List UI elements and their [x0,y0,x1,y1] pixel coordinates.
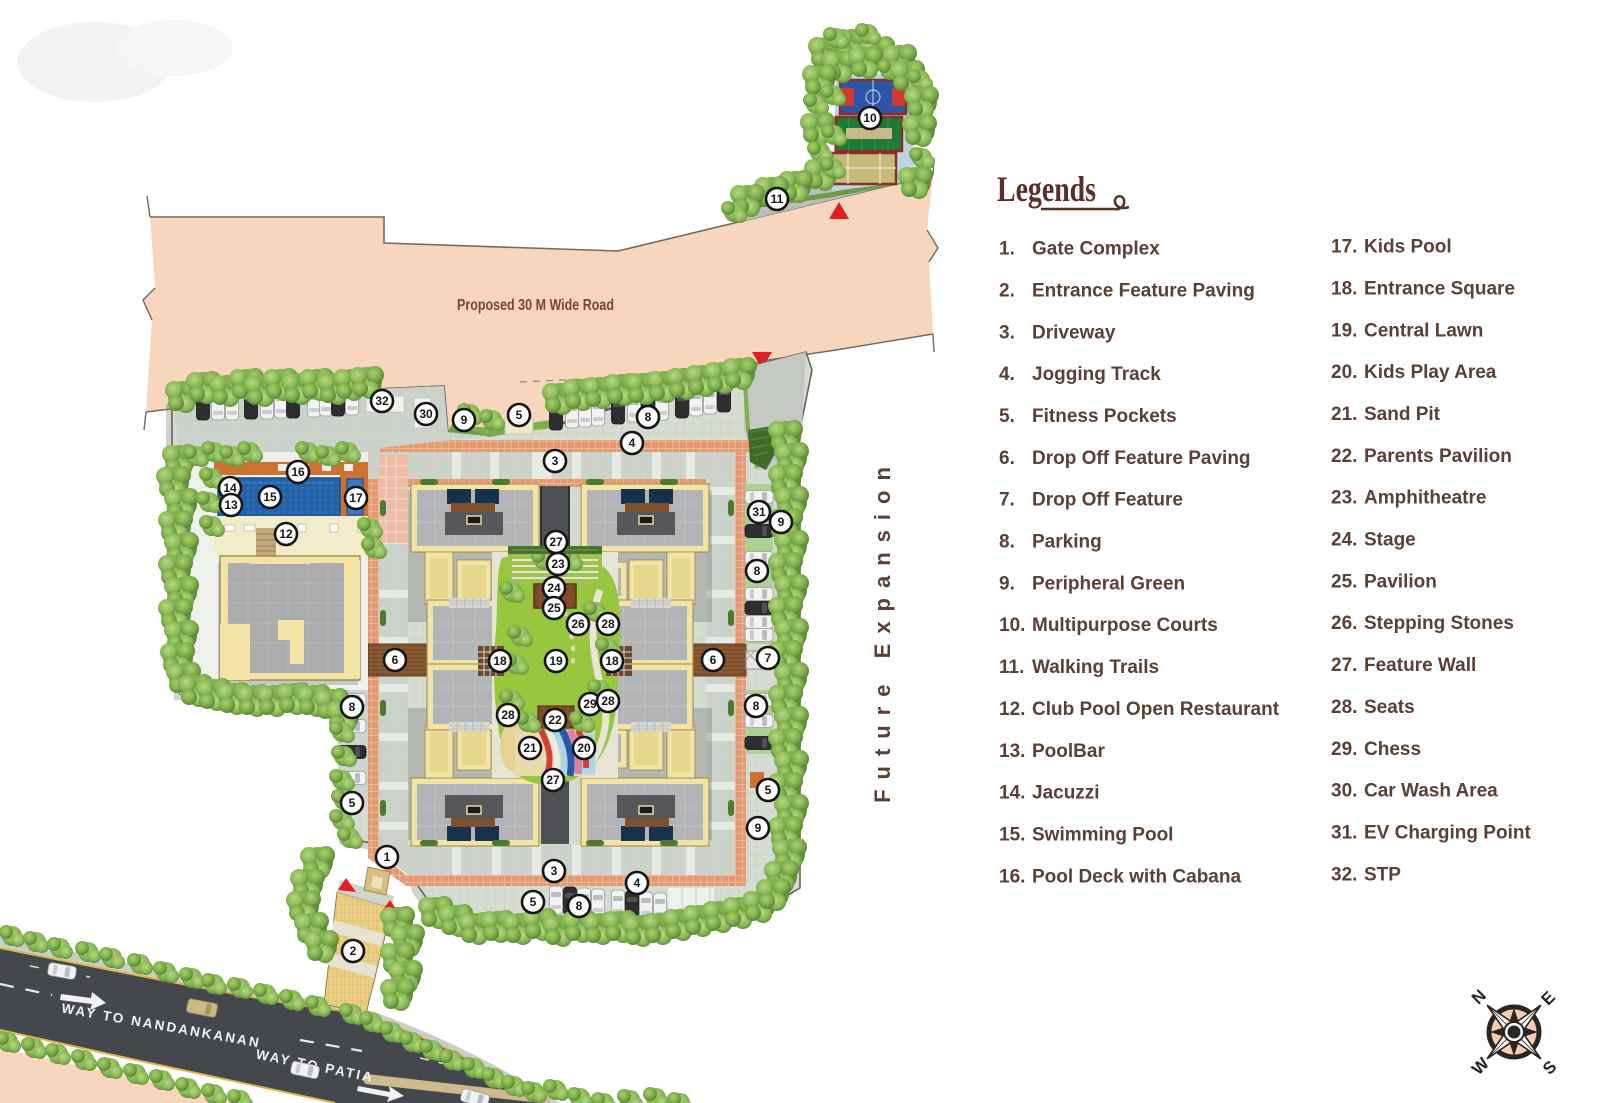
svg-text:9.: 9. [999,573,1015,594]
svg-text:8: 8 [753,699,760,713]
svg-text:25.: 25. [1331,571,1357,592]
svg-text:32.: 32. [1331,864,1357,885]
svg-text:9: 9 [755,821,762,835]
svg-text:28: 28 [501,708,515,722]
svg-text:8: 8 [645,410,652,424]
svg-text:12: 12 [279,527,293,541]
svg-text:Central Lawn: Central Lawn [1364,320,1483,341]
svg-text:27.: 27. [1331,655,1357,676]
svg-text:Entrance Feature Paving: Entrance Feature Paving [1032,280,1255,301]
svg-text:PoolBar: PoolBar [1032,741,1105,762]
svg-text:29: 29 [583,697,597,711]
svg-text:8.: 8. [999,532,1015,553]
svg-text:2: 2 [350,944,357,958]
svg-text:10.: 10. [999,615,1025,636]
svg-text:Walking Trails: Walking Trails [1032,657,1159,678]
svg-text:5.: 5. [999,406,1015,427]
svg-text:28.: 28. [1331,697,1357,718]
svg-text:Fitness Pockets: Fitness Pockets [1032,406,1177,427]
svg-text:5: 5 [765,783,772,797]
svg-text:24.: 24. [1331,530,1357,551]
svg-text:5: 5 [349,796,356,810]
svg-text:Future Expansion: Future Expansion [870,457,895,803]
svg-text:18: 18 [493,654,507,668]
svg-text:19: 19 [549,654,563,668]
svg-text:22: 22 [548,713,562,727]
svg-text:19.: 19. [1331,320,1357,341]
svg-text:27: 27 [546,773,560,787]
svg-text:Proposed 30 M Wide Road: Proposed 30 M Wide Road [457,297,614,314]
svg-text:6: 6 [710,653,717,667]
svg-text:Entrance Square: Entrance Square [1364,278,1515,299]
svg-text:STP: STP [1364,864,1401,885]
svg-text:23: 23 [551,557,565,571]
svg-text:7: 7 [765,651,772,665]
svg-text:12.: 12. [999,699,1025,720]
svg-text:Parking: Parking [1032,532,1102,553]
svg-text:15: 15 [263,490,277,504]
svg-text:Multipurpose Courts: Multipurpose Courts [1032,615,1218,636]
svg-text:21: 21 [523,741,537,755]
svg-text:Seats: Seats [1364,697,1415,718]
svg-text:30: 30 [419,407,433,421]
svg-text:32: 32 [375,394,389,408]
svg-text:Jacuzzi: Jacuzzi [1032,783,1100,804]
svg-text:Gate Complex: Gate Complex [1032,239,1160,260]
svg-text:28: 28 [601,694,615,708]
svg-text:27: 27 [549,535,563,549]
svg-text:31: 31 [752,505,766,519]
svg-text:22.: 22. [1331,446,1357,467]
svg-text:8: 8 [576,899,583,913]
svg-text:20: 20 [577,741,591,755]
svg-text:5: 5 [516,408,523,422]
svg-text:Sand Pit: Sand Pit [1364,404,1441,425]
svg-text:9: 9 [778,515,785,529]
svg-text:17: 17 [349,491,363,505]
svg-text:7.: 7. [999,490,1015,511]
svg-text:8: 8 [349,700,356,714]
svg-text:13.: 13. [999,741,1025,762]
svg-text:21.: 21. [1331,404,1357,425]
svg-text:6.: 6. [999,448,1015,469]
svg-text:Kids Pool: Kids Pool [1364,237,1452,258]
svg-text:11.: 11. [999,657,1024,678]
svg-text:18.: 18. [1331,278,1357,299]
svg-text:20.: 20. [1331,362,1357,383]
svg-text:2.: 2. [999,280,1015,301]
svg-text:3: 3 [552,454,559,468]
svg-text:4: 4 [629,436,636,450]
svg-text:Legends: Legends [997,169,1096,209]
svg-text:25: 25 [547,601,561,615]
svg-text:Parents Pavilion: Parents Pavilion [1364,446,1512,467]
svg-text:5: 5 [530,895,537,909]
svg-text:4: 4 [634,876,641,890]
svg-text:24: 24 [547,581,561,595]
svg-text:10: 10 [863,111,877,125]
svg-text:1.: 1. [999,239,1015,260]
svg-text:6: 6 [392,653,399,667]
svg-text:8: 8 [754,564,761,578]
svg-text:EV Charging Point: EV Charging Point [1364,823,1531,844]
svg-text:3: 3 [551,864,558,878]
svg-text:16: 16 [291,465,305,479]
svg-text:13: 13 [224,498,238,512]
svg-text:Peripheral Green: Peripheral Green [1032,573,1185,594]
svg-text:18: 18 [605,654,619,668]
svg-text:16.: 16. [999,866,1025,887]
svg-text:14.: 14. [999,783,1025,804]
svg-text:1: 1 [384,850,391,864]
svg-text:31.: 31. [1331,823,1357,844]
svg-text:Pool Deck with Cabana: Pool Deck with Cabana [1032,866,1241,887]
svg-text:Car Wash Area: Car Wash Area [1364,781,1498,802]
svg-text:Kids Play Area: Kids Play Area [1364,362,1497,383]
svg-text:Stepping Stones: Stepping Stones [1364,613,1514,634]
svg-text:Drop Off Feature Paving: Drop Off Feature Paving [1032,448,1251,469]
svg-text:26.: 26. [1331,613,1357,634]
svg-text:Amphitheatre: Amphitheatre [1364,488,1486,509]
svg-text:Chess: Chess [1364,739,1421,760]
svg-text:Stage: Stage [1364,530,1416,551]
svg-text:28: 28 [601,617,615,631]
svg-text:11: 11 [771,192,784,206]
svg-text:15.: 15. [999,825,1025,846]
svg-text:Jogging Track: Jogging Track [1032,364,1161,385]
svg-text:9: 9 [461,413,468,427]
svg-text:Swimming Pool: Swimming Pool [1032,825,1173,846]
svg-text:17.: 17. [1331,237,1357,258]
svg-text:30.: 30. [1331,781,1357,802]
svg-text:29.: 29. [1331,739,1357,760]
svg-text:Pavilion: Pavilion [1364,571,1437,592]
svg-text:23.: 23. [1331,488,1357,509]
svg-text:Feature Wall: Feature Wall [1364,655,1476,676]
svg-text:Drop Off Feature: Drop Off Feature [1032,490,1183,511]
svg-text:Club Pool Open Restaurant: Club Pool Open Restaurant [1032,699,1280,720]
svg-text:3.: 3. [999,322,1015,343]
svg-text:Driveway: Driveway [1032,322,1116,343]
svg-text:4.: 4. [999,364,1015,385]
svg-text:26: 26 [571,617,585,631]
